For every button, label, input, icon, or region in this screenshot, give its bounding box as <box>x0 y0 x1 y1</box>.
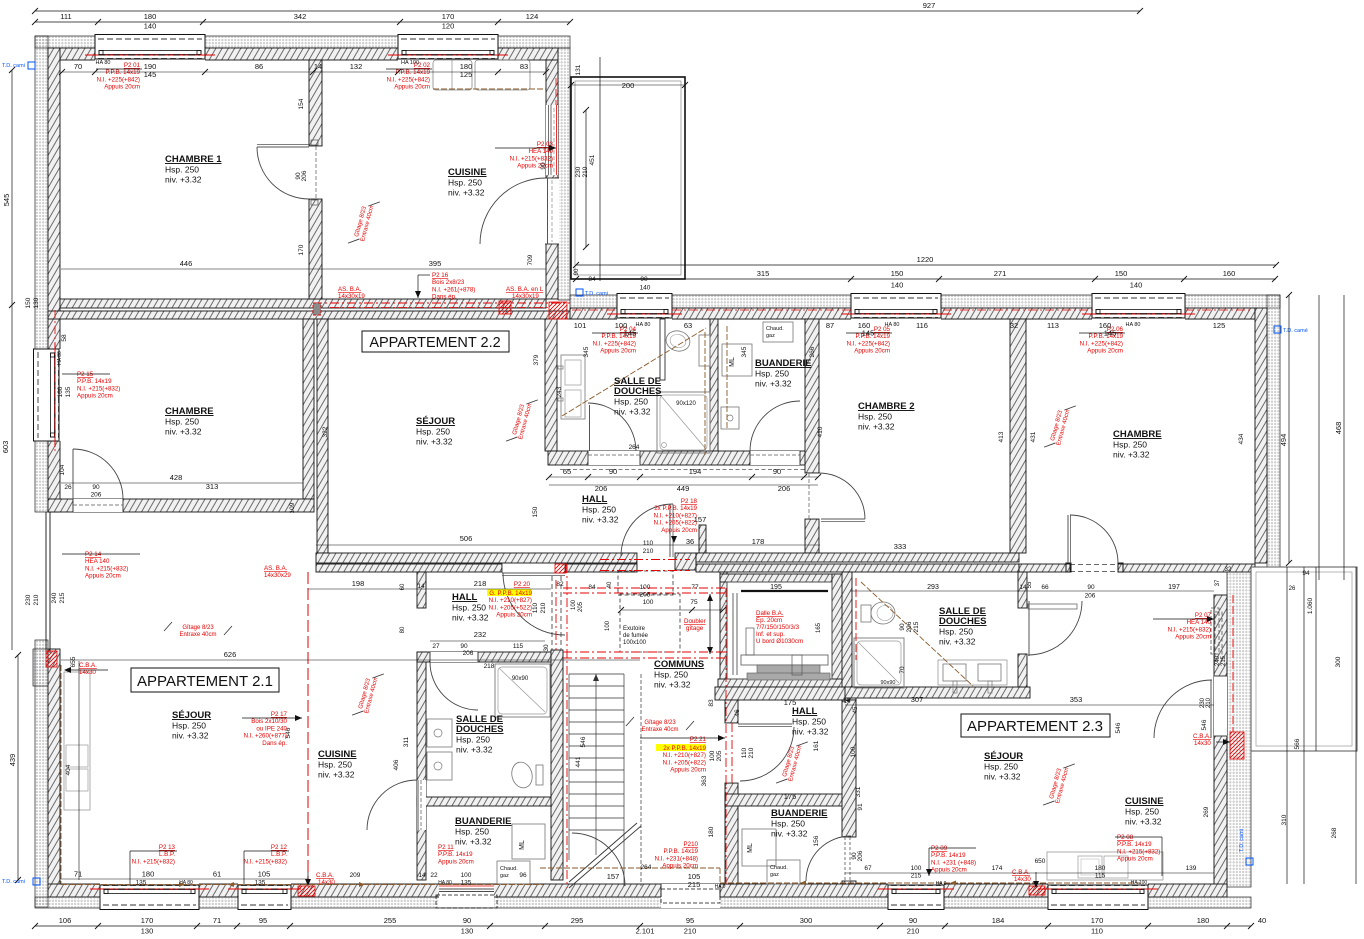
svg-text:125: 125 <box>1213 321 1226 330</box>
svg-text:niv. +3.32: niv. +3.32 <box>771 829 808 839</box>
svg-text:135: 135 <box>461 880 472 887</box>
svg-text:650: 650 <box>1035 858 1046 865</box>
svg-text:271: 271 <box>994 269 1007 278</box>
svg-text:Appuis 20cm: Appuis 20cm <box>1175 634 1211 641</box>
svg-text:P2 15: P2 15 <box>77 371 94 378</box>
svg-text:110: 110 <box>643 540 654 547</box>
svg-text:90: 90 <box>540 162 547 170</box>
svg-text:60: 60 <box>400 583 406 590</box>
svg-text:90: 90 <box>460 643 468 650</box>
svg-text:131: 131 <box>575 64 582 75</box>
svg-text:210: 210 <box>582 166 589 177</box>
svg-text:157: 157 <box>694 515 707 524</box>
svg-text:145: 145 <box>862 329 875 338</box>
svg-text:Appuis 20cm: Appuis 20cm <box>85 573 121 580</box>
svg-text:230: 230 <box>25 594 32 605</box>
svg-text:80: 80 <box>400 626 406 633</box>
svg-text:N.I. +205(+522): N.I. +205(+522) <box>489 604 532 611</box>
svg-text:C.B.A.: C.B.A. <box>1012 869 1030 876</box>
svg-text:HA 80: HA 80 <box>96 60 111 66</box>
svg-text:Hsp. 250: Hsp. 250 <box>165 417 199 427</box>
svg-text:215: 215 <box>911 873 922 880</box>
svg-text:Hsp. 250: Hsp. 250 <box>755 369 789 379</box>
svg-text:14x30x19: 14x30x19 <box>338 293 365 300</box>
svg-text:14: 14 <box>843 698 851 705</box>
svg-text:Hsp. 250: Hsp. 250 <box>318 760 352 770</box>
svg-text:333: 333 <box>894 542 907 551</box>
svg-text:113: 113 <box>1047 321 1059 330</box>
svg-text:P210: P210 <box>684 841 699 848</box>
svg-text:546: 546 <box>285 727 292 738</box>
svg-text:215: 215 <box>59 592 66 603</box>
svg-text:2x P.P.B. 14x19: 2x P.P.B. 14x19 <box>663 745 706 752</box>
svg-text:104: 104 <box>59 464 66 475</box>
svg-text:Appuis 20cm: Appuis 20cm <box>662 863 698 870</box>
svg-text:83: 83 <box>708 699 715 707</box>
svg-text:BUANDERIE: BUANDERIE <box>771 808 827 819</box>
svg-text:Ép. 20cm: Ép. 20cm <box>756 617 782 624</box>
svg-text:niv. +3.32: niv. +3.32 <box>455 837 492 847</box>
svg-text:135: 135 <box>255 880 266 887</box>
svg-text:14: 14 <box>1019 584 1027 591</box>
svg-text:N.I. +225(+842): N.I. +225(+842) <box>593 340 636 347</box>
svg-text:63: 63 <box>684 321 692 330</box>
svg-text:Gîtage 8/23: Gîtage 8/23 <box>182 625 214 631</box>
svg-text:U bord Ø1030cm: U bord Ø1030cm <box>756 638 803 645</box>
svg-text:P2 18: P2 18 <box>681 498 698 505</box>
svg-text:110: 110 <box>1091 927 1103 935</box>
svg-text:P2 16: P2 16 <box>432 272 449 279</box>
svg-text:niv. +3.32: niv. +3.32 <box>165 175 202 185</box>
svg-text:ML: ML <box>747 843 754 853</box>
svg-text:363: 363 <box>701 775 708 786</box>
svg-text:AS. B.A.: AS. B.A. <box>338 286 362 293</box>
svg-text:P2 12: P2 12 <box>271 844 288 851</box>
svg-text:CUISINE: CUISINE <box>448 167 487 178</box>
svg-text:L.B.P.: L.B.P. <box>271 851 287 858</box>
svg-text:210: 210 <box>540 602 547 613</box>
svg-text:niv. +3.32: niv. +3.32 <box>984 772 1021 782</box>
svg-text:DOUCHES: DOUCHES <box>939 616 987 627</box>
svg-text:N.I. +205(+822): N.I. +205(+822) <box>663 759 706 766</box>
svg-text:HEA 140: HEA 140 <box>85 558 110 565</box>
svg-text:Hsp. 250: Hsp. 250 <box>1125 807 1159 817</box>
svg-text:105: 105 <box>258 870 271 879</box>
svg-text:293: 293 <box>927 584 939 591</box>
svg-text:gaz: gaz <box>766 333 775 339</box>
svg-text:150: 150 <box>1115 269 1128 278</box>
svg-text:240: 240 <box>51 592 58 603</box>
svg-text:2x P.P.B. 14x19: 2x P.P.B. 14x19 <box>654 505 697 512</box>
svg-text:niv. +3.32: niv. +3.32 <box>582 515 619 525</box>
svg-text:70: 70 <box>74 62 82 71</box>
svg-text:180: 180 <box>1095 865 1106 872</box>
svg-text:170: 170 <box>1091 916 1104 925</box>
svg-text:132: 132 <box>350 62 363 71</box>
svg-text:HA 80: HA 80 <box>179 880 193 886</box>
svg-text:P2 14: P2 14 <box>85 551 102 558</box>
svg-text:71: 71 <box>74 870 82 879</box>
svg-text:T.D. cami: T.D. cami <box>1239 829 1245 852</box>
svg-text:HA 80: HA 80 <box>1126 322 1141 328</box>
svg-text:198: 198 <box>352 579 365 588</box>
svg-text:95: 95 <box>686 916 694 925</box>
svg-text:66: 66 <box>1041 584 1049 591</box>
svg-text:N.I. +210(+827): N.I. +210(+827) <box>489 597 532 604</box>
svg-text:150: 150 <box>25 297 32 308</box>
svg-text:90x120: 90x120 <box>676 401 696 407</box>
svg-text:130: 130 <box>33 297 40 308</box>
svg-text:130: 130 <box>141 927 154 935</box>
svg-text:niv. +3.32: niv. +3.32 <box>172 731 209 741</box>
svg-text:Hsp. 250: Hsp. 250 <box>858 412 892 422</box>
svg-text:175: 175 <box>784 792 797 801</box>
svg-text:gaz: gaz <box>770 872 779 878</box>
svg-text:HA 0: HA 0 <box>936 881 947 887</box>
svg-text:T.D. cami: T.D. cami <box>2 879 25 885</box>
svg-text:N.I. +215(+832): N.I. +215(+832) <box>85 565 128 572</box>
svg-text:Dalle B.A.: Dalle B.A. <box>756 610 784 617</box>
svg-text:G. P.P.B. 14x19: G. P.P.B. 14x19 <box>489 590 532 597</box>
svg-text:27: 27 <box>432 643 440 650</box>
svg-text:441: 441 <box>575 756 582 767</box>
svg-text:P2 20: P2 20 <box>514 581 531 588</box>
svg-text:Appuis 20cm: Appuis 20cm <box>77 393 113 400</box>
svg-text:200: 200 <box>622 81 635 90</box>
svg-text:niv. +3.32: niv. +3.32 <box>858 422 895 432</box>
svg-text:206: 206 <box>778 484 791 493</box>
svg-text:Hsp. 250: Hsp. 250 <box>416 427 450 437</box>
svg-text:14: 14 <box>417 583 425 590</box>
svg-text:140: 140 <box>891 281 904 290</box>
svg-text:Chaud.: Chaud. <box>766 326 784 332</box>
svg-text:Appuis 20cm: Appuis 20cm <box>670 767 706 774</box>
svg-text:140: 140 <box>640 285 651 292</box>
svg-text:Appuis 20cm: Appuis 20cm <box>661 527 697 534</box>
svg-text:206: 206 <box>301 170 308 181</box>
svg-text:14: 14 <box>418 872 426 879</box>
svg-text:P2 21: P2 21 <box>690 736 707 743</box>
svg-text:266: 266 <box>809 346 816 357</box>
svg-text:90: 90 <box>899 623 906 631</box>
svg-text:CHAMBRE 2: CHAMBRE 2 <box>858 401 914 412</box>
svg-text:ou IPE 240: ou IPE 240 <box>256 725 287 732</box>
svg-text:N.I. +225(+842): N.I. +225(+842) <box>1080 340 1123 347</box>
svg-text:206: 206 <box>595 484 608 493</box>
svg-text:210: 210 <box>907 927 920 935</box>
svg-text:90: 90 <box>1087 584 1095 591</box>
svg-text:N.I. +261(+878): N.I. +261(+878) <box>432 286 475 293</box>
svg-text:niv. +3.32: niv. +3.32 <box>1125 817 1162 827</box>
svg-text:94: 94 <box>1302 570 1310 577</box>
svg-text:N.I. +215(+832): N.I. +215(+832) <box>1117 848 1160 855</box>
svg-text:46: 46 <box>734 709 741 717</box>
svg-text:232: 232 <box>474 630 487 639</box>
svg-text:Hsp. 250: Hsp. 250 <box>939 627 973 637</box>
svg-text:100: 100 <box>461 872 472 879</box>
svg-text:Hsp. 250: Hsp. 250 <box>456 735 490 745</box>
svg-text:N.I. +215(+832): N.I. +215(+832) <box>77 385 120 392</box>
svg-text:110: 110 <box>741 747 748 758</box>
svg-text:395: 395 <box>429 259 442 268</box>
svg-text:428: 428 <box>170 473 183 482</box>
svg-text:120: 120 <box>442 22 455 31</box>
svg-text:439: 439 <box>8 754 17 767</box>
svg-text:40: 40 <box>607 581 613 588</box>
svg-text:264: 264 <box>629 444 640 451</box>
svg-text:180: 180 <box>144 12 157 21</box>
svg-text:130: 130 <box>461 927 474 935</box>
svg-text:215: 215 <box>688 880 701 889</box>
svg-text:niv. +3.32: niv. +3.32 <box>792 727 829 737</box>
svg-text:160: 160 <box>1223 269 1236 278</box>
svg-text:205: 205 <box>578 601 584 612</box>
svg-text:145: 145 <box>624 329 637 338</box>
svg-text:P2 09: P2 09 <box>931 845 948 852</box>
svg-text:Hsp. 250: Hsp. 250 <box>1113 440 1147 450</box>
svg-text:T.D. cami: T.D. cami <box>585 291 608 297</box>
svg-text:P2 13: P2 13 <box>159 844 176 851</box>
svg-text:313: 313 <box>206 482 219 491</box>
svg-text:178: 178 <box>752 537 765 546</box>
svg-text:CHAMBRE: CHAMBRE <box>1113 429 1162 440</box>
svg-text:170: 170 <box>141 916 154 925</box>
svg-text:87: 87 <box>826 321 834 330</box>
svg-text:210: 210 <box>33 594 40 605</box>
svg-text:Bois 2x8/23: Bois 2x8/23 <box>432 279 465 286</box>
svg-text:Appuis 20cm: Appuis 20cm <box>517 163 553 170</box>
svg-text:506: 506 <box>460 534 473 543</box>
svg-text:Appuis 20cm: Appuis 20cm <box>394 84 430 91</box>
svg-text:545: 545 <box>2 194 11 207</box>
svg-text:269: 269 <box>1203 806 1210 817</box>
svg-text:255: 255 <box>384 916 397 925</box>
svg-text:65: 65 <box>563 467 571 476</box>
svg-text:APPARTEMENT 2.1: APPARTEMENT 2.1 <box>137 673 273 690</box>
svg-text:315: 315 <box>757 269 770 278</box>
svg-text:116: 116 <box>916 321 928 330</box>
svg-text:90: 90 <box>773 467 781 476</box>
svg-text:Appuis 20cm: Appuis 20cm <box>438 858 474 865</box>
svg-text:157: 157 <box>607 872 620 881</box>
svg-text:209: 209 <box>350 872 361 879</box>
svg-text:331: 331 <box>855 786 862 797</box>
svg-text:140: 140 <box>1130 281 1143 290</box>
svg-text:83: 83 <box>520 62 528 71</box>
svg-text:345: 345 <box>741 346 748 357</box>
svg-text:Hsp. 250: Hsp. 250 <box>614 397 648 407</box>
svg-text:210: 210 <box>1206 697 1212 708</box>
svg-text:218: 218 <box>484 663 495 670</box>
svg-text:206: 206 <box>857 850 864 861</box>
svg-text:Entraxe 40cm: Entraxe 40cm <box>179 632 216 638</box>
svg-text:Appuis 20cm: Appuis 20cm <box>600 348 636 355</box>
svg-text:139: 139 <box>1186 865 1197 872</box>
svg-text:Appuis 20cm: Appuis 20cm <box>1117 856 1153 863</box>
svg-text:205: 205 <box>640 592 651 599</box>
svg-text:311: 311 <box>403 736 410 747</box>
svg-text:32: 32 <box>1010 321 1018 330</box>
svg-text:195: 195 <box>770 584 782 591</box>
svg-text:101: 101 <box>574 321 587 330</box>
svg-text:156: 156 <box>813 835 820 846</box>
svg-text:30: 30 <box>543 644 550 652</box>
svg-text:ML: ML <box>519 840 526 850</box>
svg-text:160: 160 <box>57 386 64 397</box>
svg-text:C.B.A.: C.B.A. <box>1193 733 1211 740</box>
svg-text:95: 95 <box>259 916 267 925</box>
svg-text:90: 90 <box>909 916 917 925</box>
svg-text:niv. +3.32: niv. +3.32 <box>755 379 792 389</box>
svg-text:niv. +3.32: niv. +3.32 <box>448 188 485 198</box>
svg-text:170: 170 <box>442 12 455 21</box>
svg-text:C.B.A.: C.B.A. <box>79 662 97 669</box>
svg-text:180: 180 <box>1197 916 1210 925</box>
svg-text:P2 08: P2 08 <box>1117 834 1134 841</box>
svg-text:Hsp. 250: Hsp. 250 <box>172 721 206 731</box>
svg-text:14x30: 14x30 <box>1194 740 1211 747</box>
svg-text:36: 36 <box>686 537 694 546</box>
svg-text:655: 655 <box>70 656 77 667</box>
svg-text:P.P.B. 14x19: P.P.B. 14x19 <box>931 852 966 859</box>
svg-text:N.I. +210(+827): N.I. +210(+827) <box>654 512 697 519</box>
svg-text:215: 215 <box>1221 655 1227 666</box>
svg-text:14x30: 14x30 <box>1014 876 1031 883</box>
svg-text:26: 26 <box>1289 586 1296 592</box>
svg-text:295: 295 <box>571 916 584 925</box>
svg-text:197: 197 <box>1168 584 1180 591</box>
svg-text:210: 210 <box>684 927 697 935</box>
svg-text:446: 446 <box>180 259 193 268</box>
svg-text:N.I. +231 (+848): N.I. +231 (+848) <box>931 859 976 866</box>
svg-text:BUANDERIE: BUANDERIE <box>755 358 811 369</box>
svg-text:194: 194 <box>689 467 702 476</box>
svg-text:niv. +3.32: niv. +3.32 <box>452 613 489 623</box>
svg-text:449: 449 <box>677 484 690 493</box>
svg-text:927: 927 <box>923 1 936 10</box>
svg-text:434: 434 <box>1238 433 1245 444</box>
svg-text:P2 17: P2 17 <box>271 711 288 718</box>
svg-text:100: 100 <box>850 746 857 757</box>
svg-text:L.B.P.: L.B.P. <box>159 851 175 858</box>
svg-text:174: 174 <box>992 865 1003 872</box>
svg-text:124: 124 <box>526 12 539 21</box>
svg-text:145: 145 <box>144 70 157 79</box>
svg-text:40: 40 <box>1258 916 1266 925</box>
svg-text:DOUCHES: DOUCHES <box>614 386 662 397</box>
svg-text:406: 406 <box>393 759 400 770</box>
svg-text:CUISINE: CUISINE <box>1125 796 1164 807</box>
svg-text:268: 268 <box>1331 827 1338 838</box>
svg-text:7/7/150/150/3/3: 7/7/150/150/3/3 <box>756 624 800 631</box>
svg-text:ML: ML <box>729 357 736 367</box>
svg-text:243: 243 <box>556 386 563 397</box>
svg-text:1.060: 1.060 <box>1307 597 1314 614</box>
svg-text:HALL: HALL <box>792 706 818 717</box>
svg-text:HA 80: HA 80 <box>885 322 900 328</box>
svg-text:86: 86 <box>255 62 263 71</box>
svg-text:P.P.B. 14x19: P.P.B. 14x19 <box>438 851 473 858</box>
svg-text:345: 345 <box>583 346 590 357</box>
svg-text:Hsp. 250: Hsp. 250 <box>165 165 199 175</box>
svg-text:342: 342 <box>294 12 307 21</box>
svg-text:Inf. et sup.: Inf. et sup. <box>756 631 785 638</box>
svg-text:180: 180 <box>142 870 155 879</box>
svg-text:N.I. +215(+832): N.I. +215(+832) <box>244 858 287 865</box>
svg-text:90x90: 90x90 <box>881 680 896 686</box>
svg-text:P.P.B. 14x19: P.P.B. 14x19 <box>105 69 140 76</box>
svg-text:HA 100: HA 100 <box>401 60 419 66</box>
svg-text:494: 494 <box>1279 434 1288 447</box>
svg-text:AS. B.A. en L: AS. B.A. en L <box>506 286 544 293</box>
svg-text:N.I. +231(+848): N.I. +231(+848) <box>655 855 698 862</box>
svg-text:90: 90 <box>640 276 648 283</box>
svg-text:71: 71 <box>213 916 221 925</box>
svg-text:N.I. +205(+822): N.I. +205(+822) <box>654 520 697 527</box>
svg-text:P.P.B. 14x19: P.P.B. 14x19 <box>663 848 698 855</box>
svg-text:206: 206 <box>463 650 474 657</box>
svg-text:Appuis 20cm: Appuis 20cm <box>854 348 890 355</box>
svg-text:90: 90 <box>92 484 100 491</box>
svg-text:135: 135 <box>136 880 147 887</box>
svg-text:322: 322 <box>322 426 329 437</box>
svg-text:niv. +3.32: niv. +3.32 <box>416 437 453 447</box>
svg-text:Appuis 20cm: Appuis 20cm <box>496 612 532 619</box>
svg-text:206: 206 <box>91 492 102 499</box>
svg-text:264: 264 <box>641 864 652 871</box>
svg-text:115: 115 <box>1095 873 1106 880</box>
svg-text:P.P.B. 14x19: P.P.B. 14x19 <box>395 69 430 76</box>
svg-text:300: 300 <box>800 916 813 925</box>
svg-text:230: 230 <box>575 166 582 177</box>
svg-text:C.B.A.: C.B.A. <box>316 872 334 879</box>
svg-text:37: 37 <box>1215 579 1221 586</box>
svg-text:Appuis 20cm: Appuis 20cm <box>104 84 140 91</box>
svg-text:206: 206 <box>1085 593 1096 600</box>
svg-text:431: 431 <box>1030 431 1037 442</box>
svg-text:HALL: HALL <box>452 592 478 603</box>
svg-text:75: 75 <box>690 599 698 606</box>
svg-text:300: 300 <box>1335 656 1342 667</box>
svg-text:205: 205 <box>716 750 723 761</box>
svg-text:Entraxe 40cm: Entraxe 40cm <box>641 727 678 733</box>
svg-text:N.I. +225(+842): N.I. +225(+842) <box>97 76 140 83</box>
svg-text:70: 70 <box>899 666 906 674</box>
svg-text:468: 468 <box>1334 422 1343 435</box>
svg-text:niv. +3.32: niv. +3.32 <box>654 680 691 690</box>
svg-text:N.I. +215(+832): N.I. +215(+832) <box>1168 626 1211 633</box>
svg-text:P2 01: P2 01 <box>124 62 141 69</box>
svg-text:P.P.B. 14x19: P.P.B. 14x19 <box>77 378 112 385</box>
svg-text:22: 22 <box>430 872 438 879</box>
svg-text:BUANDERIE: BUANDERIE <box>455 816 511 827</box>
svg-text:Hsp. 250: Hsp. 250 <box>771 819 805 829</box>
svg-text:P.P.B. 14x19: P.P.B. 14x19 <box>1117 841 1152 848</box>
svg-text:14x30x19: 14x30x19 <box>512 293 539 300</box>
svg-text:CHAMBRE: CHAMBRE <box>165 406 214 417</box>
svg-text:84: 84 <box>588 584 596 591</box>
svg-text:niv. +3.32: niv. +3.32 <box>939 637 976 647</box>
svg-text:HA 0: HA 0 <box>715 884 726 890</box>
svg-text:140: 140 <box>144 22 157 31</box>
svg-text:67: 67 <box>864 865 872 872</box>
svg-text:100: 100 <box>643 599 654 606</box>
svg-text:110: 110 <box>532 602 539 613</box>
svg-text:546: 546 <box>1201 719 1208 730</box>
svg-text:Bois 2x10/30: Bois 2x10/30 <box>251 718 287 725</box>
svg-text:HA 80: HA 80 <box>57 351 63 365</box>
svg-text:niv. +3.32: niv. +3.32 <box>318 770 355 780</box>
